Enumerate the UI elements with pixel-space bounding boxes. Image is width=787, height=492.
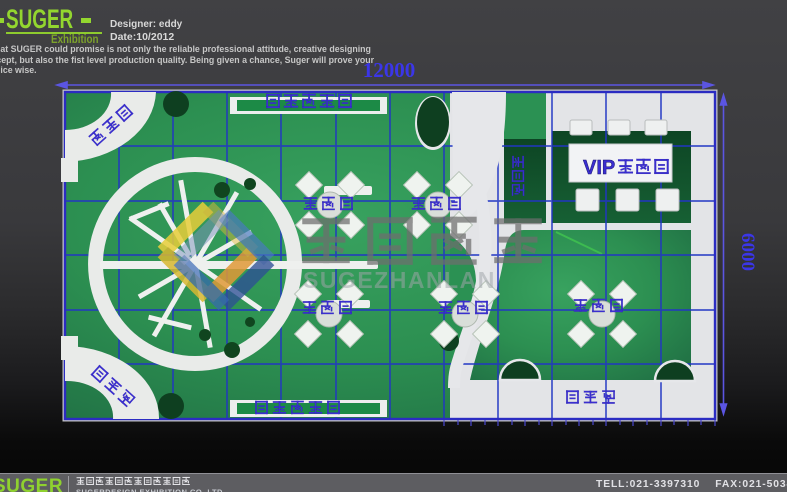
svg-text:SUGERDESIGN EXHIBITION CO.,LTD: SUGERDESIGN EXHIBITION CO.,LTD (76, 488, 223, 492)
